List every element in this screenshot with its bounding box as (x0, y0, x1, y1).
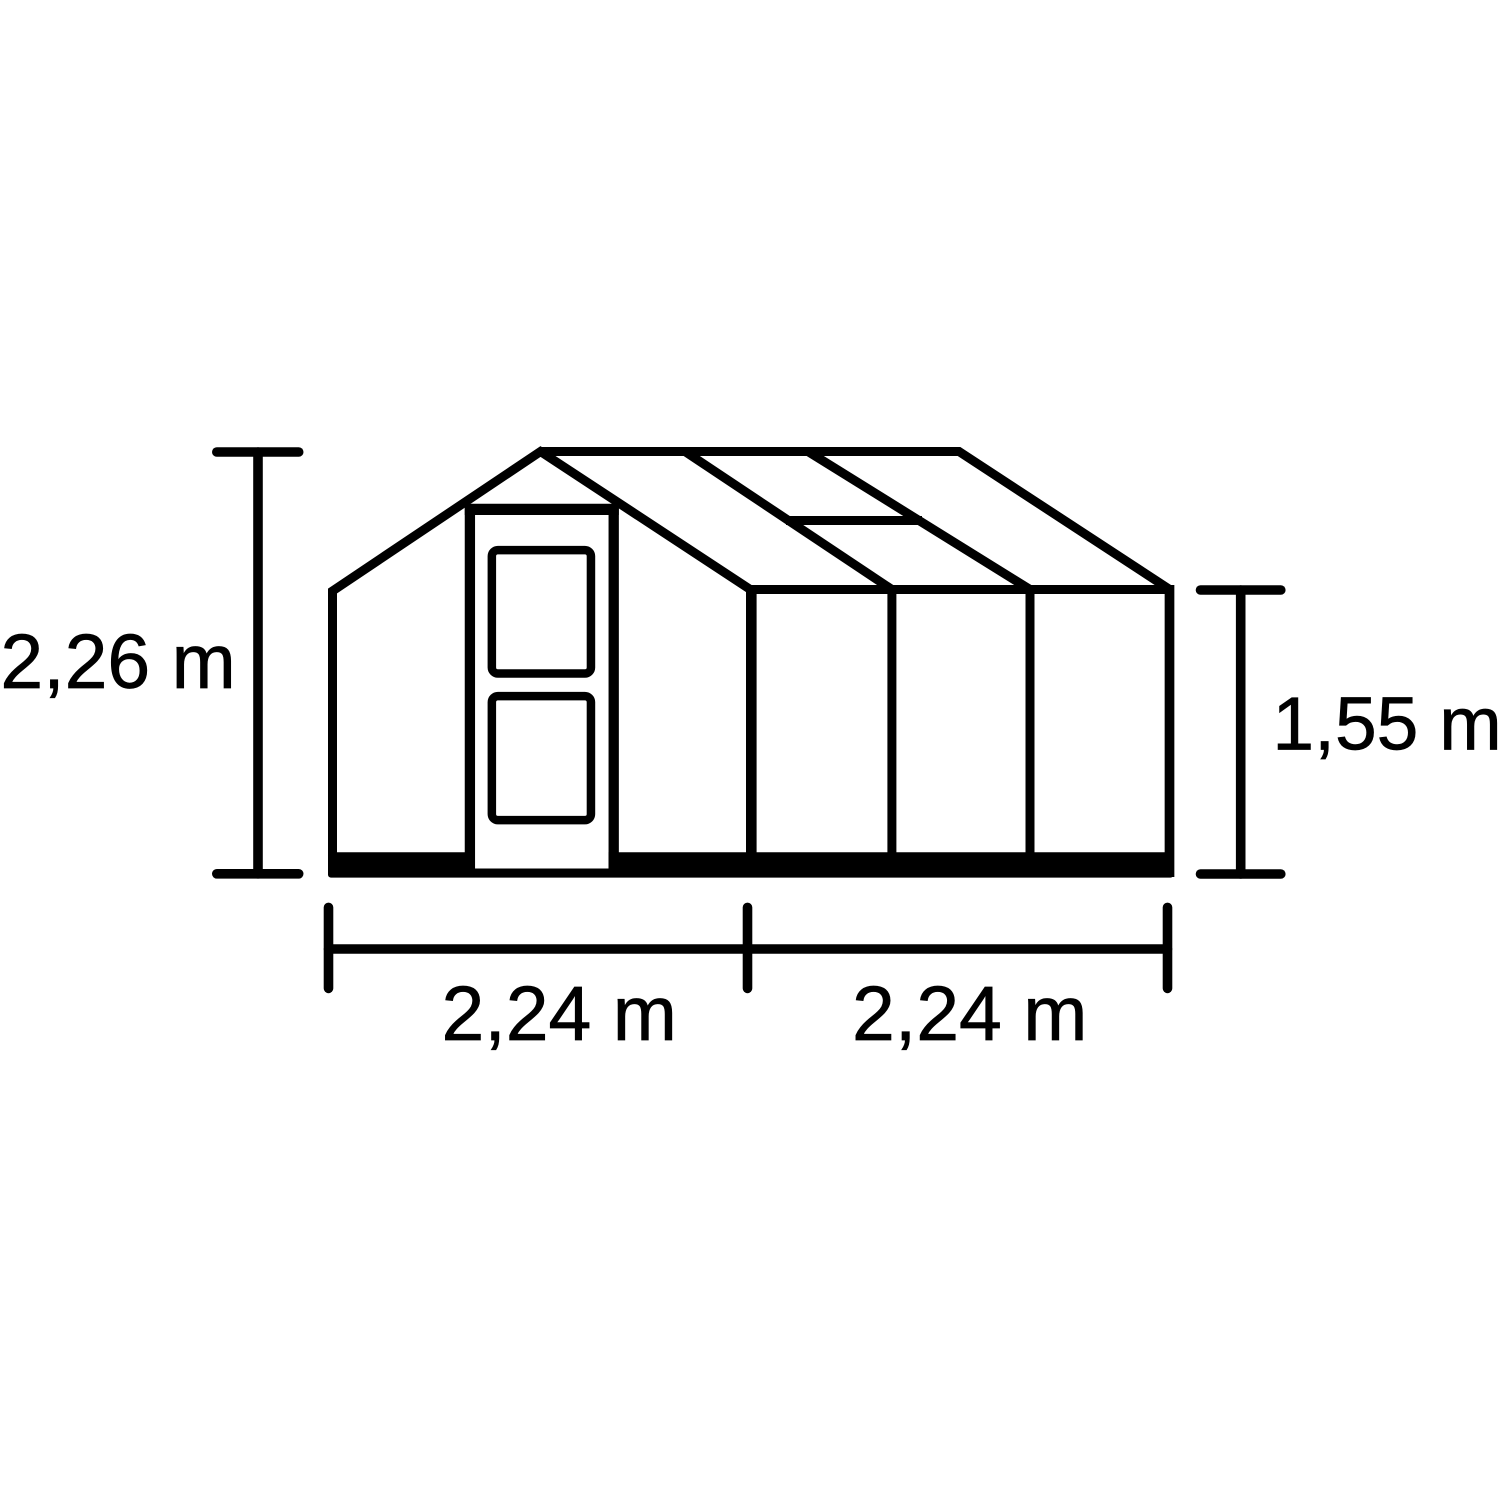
svg-text:2,26 m: 2,26 m (0, 619, 235, 705)
svg-text:1,55 m: 1,55 m (1272, 681, 1500, 765)
svg-text:2,24 m: 2,24 m (852, 971, 1087, 1057)
svg-text:2,24 m: 2,24 m (442, 971, 677, 1057)
